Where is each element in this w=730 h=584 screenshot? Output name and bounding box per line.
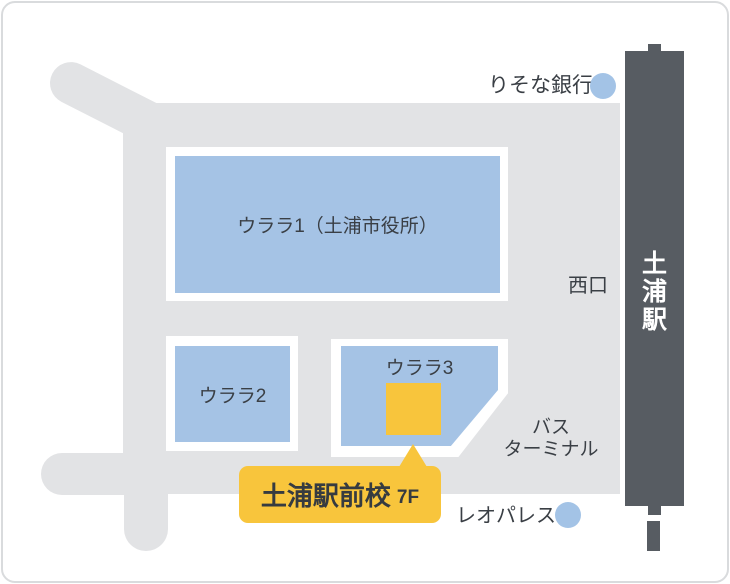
leopalace-marker-dot (555, 502, 581, 528)
building-urara1-label: ウララ1（土浦市役所） (237, 211, 438, 238)
school-floor: 7F (397, 481, 419, 509)
station-notch-bottom (648, 505, 661, 515)
station-notch-top (648, 44, 661, 52)
building-urara2: ウララ2 (175, 346, 290, 442)
callout-pointer (399, 444, 427, 467)
building-urara2-label: ウララ2 (199, 381, 267, 408)
station-track-segment (647, 521, 660, 551)
bus-terminal-label: バス ターミナル (493, 417, 609, 461)
school-location-marker (386, 383, 441, 435)
building-urara3-label: ウララ3 (386, 353, 454, 380)
bus-terminal-line2: ターミナル (503, 439, 598, 460)
bus-terminal-line1: バス (532, 417, 570, 438)
station-name: 土浦駅 (640, 250, 669, 334)
school-name: 土浦駅前校 (261, 476, 391, 513)
bank-marker-dot (590, 73, 616, 99)
access-map-card: ウララ1（土浦市役所） ウララ2 ウララ3 土浦駅 りそな銀行 西口 バス ター… (1, 1, 729, 583)
building-urara1: ウララ1（土浦市役所） (175, 156, 500, 293)
school-callout: 土浦駅前校 7F (239, 466, 441, 523)
leopalace-label: レオパレス (456, 504, 556, 528)
bank-label: りそな銀行 (488, 73, 593, 99)
west-exit-label: 西口 (568, 276, 608, 297)
